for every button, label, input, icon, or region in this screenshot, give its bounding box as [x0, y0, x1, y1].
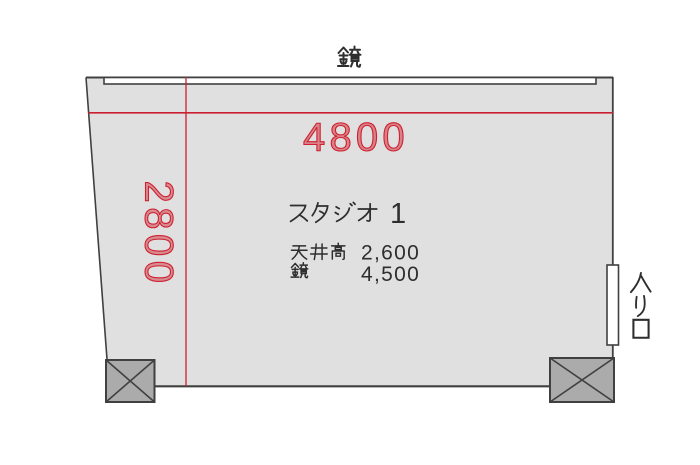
svg-text:2,600: 2,600: [361, 242, 420, 265]
svg-text:1: 1: [390, 198, 406, 230]
svg-text:4,500: 4,500: [361, 263, 420, 286]
svg-text:2800: 2800: [137, 181, 181, 288]
svg-text:4800: 4800: [303, 116, 409, 160]
